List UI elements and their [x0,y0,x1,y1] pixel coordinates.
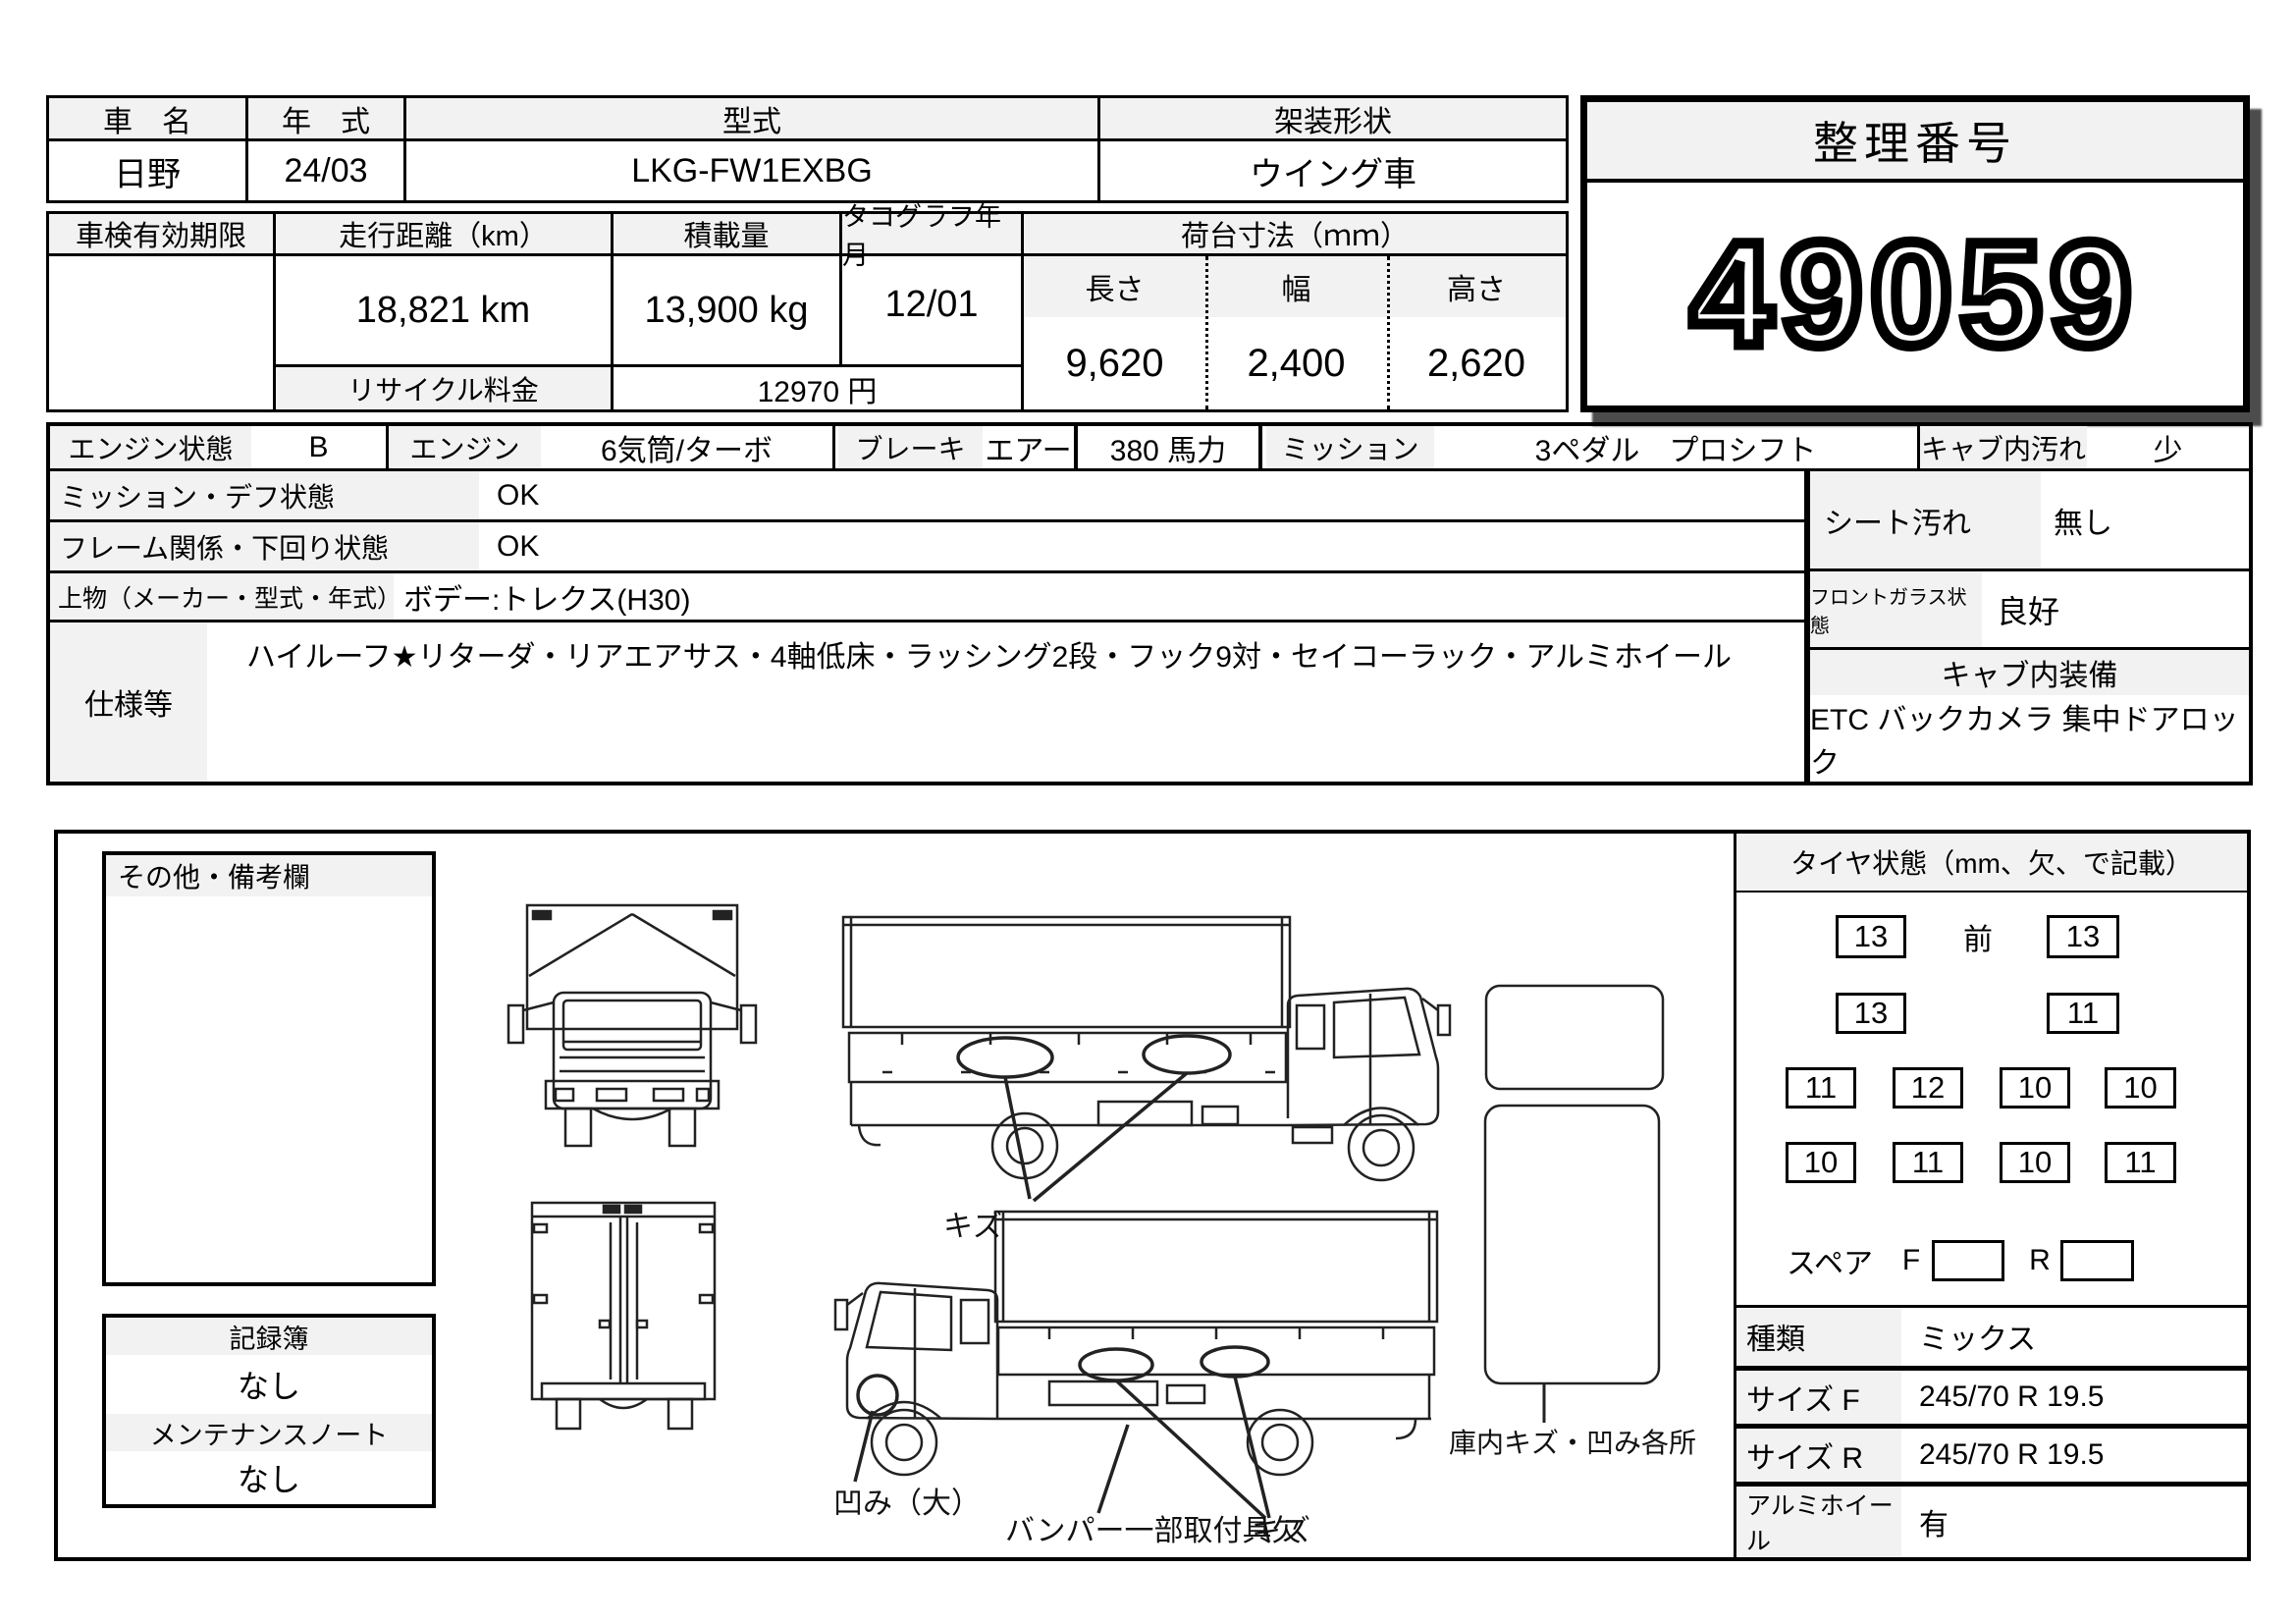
engine-state-value: B [251,426,389,468]
truck-rear-view [532,1203,715,1429]
alumi-wheel-label: アルミホイール [1736,1487,1901,1557]
mission-label: ミッション [1266,426,1434,468]
windshield-value: 良好 [1997,571,2242,647]
tire-value-box: 13 [1836,993,1906,1034]
tire-type-value: ミックス [1901,1308,2247,1366]
bed-width-value: 2,400 [1205,317,1387,409]
condition-left-block: ミッション・デフ状態 OK フレーム関係・下回り状態 OK 上物（メーカー・型式… [50,471,1807,782]
mileage-header: 走行距離（km） [276,214,614,256]
recycle-fee-value: 12970 円 [614,364,1024,409]
tire-panel: タイヤ状態（mm、欠、で記載） 13 前 13 13 11 11 12 10 1… [1734,834,2247,1557]
vehicle-detail-table: 車検有効期限 走行距離（km） 積載量 タコグラフ年月 荷台寸法（ｍｍ） 18,… [46,211,1569,412]
spare-r-label: R [2027,1240,2053,1281]
reference-number-value: 49059 [1690,209,2139,379]
annotation-dent: 凹み（大） [833,1488,981,1520]
mission-value: 3ペダル プロシフト [1434,426,1920,468]
brake-label: ブレーキ [838,426,983,468]
tire-value-box: 11 [1893,1142,1963,1183]
reference-number-box: 整理番号 49059 [1580,95,2250,412]
tire-value-box: 13 [1836,915,1906,958]
cab-dirt-value: 少 [2087,426,2249,468]
condition-table: エンジン状態 B エンジン 6気筒/ターボ ブレーキ エアー 380 馬力 ミッ… [46,422,2253,785]
auction-sheet: 車 名 年 式 型式 架装形状 日野 24/03 LKG-FW1EXBG ウイン… [0,0,2296,1623]
annotation-cargo-interior: 庫内キズ・凹み各所 [1449,1428,1696,1458]
inspection-expiry-value [49,256,276,409]
spec-label: 仕様等 [50,622,207,782]
truck-side-view-right [843,917,1450,1201]
bed-size-block: 長さ 幅 高さ 9,620 2,400 2,620 [1024,256,1566,409]
diagram-section: その他・備考欄 記録簿 なし メンテナンスノート なし [54,830,2251,1561]
condition-row-1: エンジン状態 B エンジン 6気筒/ターボ ブレーキ エアー 380 馬力 ミッ… [50,426,2249,471]
body-maker-label: 上物（メーカー・型式・年式） [50,573,394,620]
tire-type-label: 種類 [1736,1308,1901,1366]
spare-r-box [2060,1240,2134,1281]
spare-f-box [1932,1240,2004,1281]
bed-height-label: 高さ [1387,256,1566,317]
tire-value-box: 13 [2047,915,2119,958]
tire-size-r-value: 245/70 R 19.5 [1901,1429,2247,1482]
cargo-top-view [1485,986,1663,1423]
payload-header: 積載量 [614,214,842,256]
annotation-scratch-bottom: キズ [1252,1515,1310,1547]
vehicle-name-header: 車 名 [49,98,248,141]
tire-value-box: 10 [2000,1067,2070,1109]
horsepower-value: 380 馬力 [1074,426,1262,468]
bed-length-label: 長さ [1024,256,1205,317]
engine-state-label: エンジン状態 [50,426,251,468]
cab-equipment-header: キャブ内装備 [1810,650,2249,695]
vehicle-name-value: 日野 [49,141,248,200]
bed-height-value: 2,620 [1387,317,1566,409]
model-year-header: 年 式 [248,98,406,141]
tire-value-box: 12 [1893,1067,1963,1109]
condition-right-block: シート汚れ 無し フロントガラス状態 良好 キャブ内装備 ETC バックカメラ … [1807,471,2249,782]
inspection-expiry-header: 車検有効期限 [49,214,276,256]
bed-size-header: 荷台寸法（ｍｍ） [1024,214,1566,256]
frame-label: フレーム関係・下回り状態 [50,522,479,570]
seat-dirt-label: シート汚れ [1810,471,2041,568]
spare-f-label: F [1899,1240,1923,1281]
truck-front-view [508,905,756,1146]
model-code-value: LKG-FW1EXBG [406,141,1100,200]
model-code-header: 型式 [406,98,1100,141]
tire-value-box: 10 [2000,1142,2070,1183]
tire-state-header: タイヤ状態（mm、欠、で記載） [1736,834,2247,893]
engine-label: エンジン [389,426,541,468]
truck-damage-diagram: キズ 庫内キズ・凹み各所 凹み（大） バンパー一部取付具欠 キズ [58,834,1739,1557]
body-shape-value: ウイング車 [1100,141,1566,200]
engine-value: 6気筒/ターボ [541,426,835,468]
tire-size-table: 種類 ミックス サイズ F 245/70 R 19.5 サイズ R 245/70… [1736,1308,2247,1557]
brake-value: エアー [983,426,1074,468]
payload-value: 13,900 kg [614,256,842,364]
recycle-fee-label: リサイクル料金 [276,364,614,409]
tire-front-label: 前 [1949,915,2007,958]
bed-width-label: 幅 [1205,256,1387,317]
mileage-value: 18,821 km [276,256,614,364]
model-year-value: 24/03 [248,141,406,200]
tire-size-r-label: サイズ R [1736,1429,1901,1482]
alumi-wheel-value: 有 [1901,1487,2247,1557]
frame-value: OK [497,522,1086,570]
tire-value-box: 11 [2047,993,2119,1034]
tire-value-box: 11 [1786,1067,1856,1109]
cab-equipment-value: ETC バックカメラ 集中ドアロック [1810,695,2249,782]
cab-dirt-label: キャブ内汚れ [1920,426,2087,468]
truck-side-view-left [835,1212,1437,1518]
spare-label: スペア [1776,1240,1884,1281]
tire-value-box: 10 [2105,1067,2176,1109]
tire-size-f-label: サイズ F [1736,1371,1901,1424]
mission-diff-label: ミッション・デフ状態 [50,471,479,519]
tachograph-value: 12/01 [884,284,978,326]
body-shape-header: 架装形状 [1100,98,1566,141]
mission-diff-value: OK [497,471,1086,519]
annotation-scratch-top: キズ [943,1211,1002,1243]
tire-size-f-value: 245/70 R 19.5 [1901,1371,2247,1424]
windshield-label: フロントガラス状態 [1810,571,1982,647]
spec-value: ハイルーフ★リターダ・リアエアサス・4軸低床・ラッシング2段・フック9対・セイコ… [246,632,1778,676]
vehicle-title-table: 車 名 年 式 型式 架装形状 日野 24/03 LKG-FW1EXBG ウイン… [46,95,1569,203]
tachograph-header: タコグラフ年月 [842,214,1024,256]
tire-value-box: 10 [1786,1142,1856,1183]
reference-number-label: 整理番号 [1587,102,2243,183]
bed-length-value: 9,620 [1024,317,1205,409]
body-maker-value: ボデー:トレクス(H30) [403,573,1287,620]
seat-dirt-value: 無し [2054,471,2240,568]
tire-value-box: 11 [2105,1142,2176,1183]
